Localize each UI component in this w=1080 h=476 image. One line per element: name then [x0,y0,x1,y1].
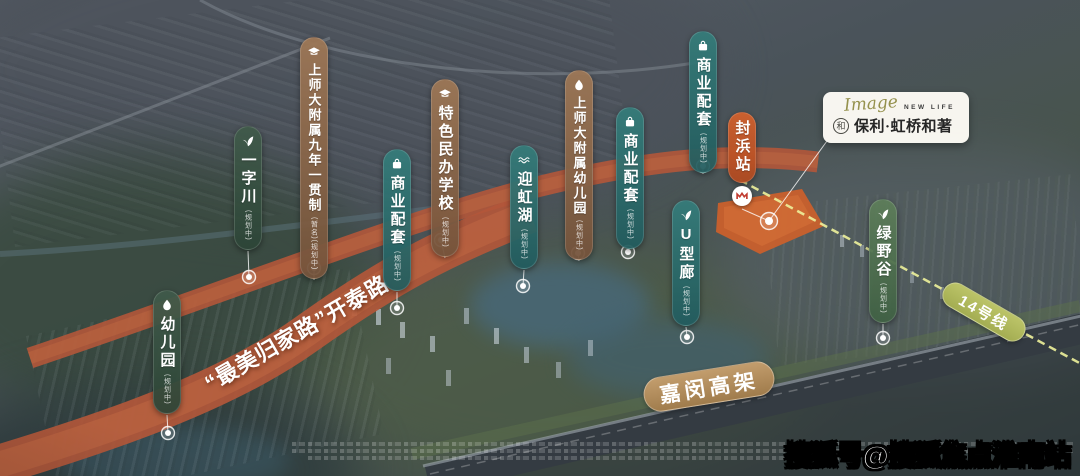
banner-note: (规划中) [245,210,252,241]
shopping-bag-icon [623,115,637,129]
banner-note: (规划中) [683,286,690,317]
banner-note: (规划中) [521,229,528,260]
banner-label: 商业配套 [390,175,405,247]
leaf-icon [241,134,255,148]
map-banner-shangshida-nine-year-school: 上师大附属九年一贯制(暂名)(规划中) [300,37,328,279]
drop-icon [572,78,586,92]
banner-note: (规划中) [576,220,583,251]
banner-note: (规划中) [880,283,887,314]
banner-label: 一字川 [241,152,256,206]
logo-subtitle: NEW LIFE [904,104,955,111]
graduation-cap-icon [307,45,321,59]
shopping-bag-icon [390,157,404,171]
banner-note: (规划中) [442,217,449,248]
map-banner-shangshida-kindergarten: 上师大附属幼儿园(规划中) [565,70,593,260]
banner-label: U型廊 [679,226,694,282]
drop-icon [160,298,174,312]
banner-note: (暂名)(规划中) [311,217,318,270]
project-name: 保利·虹桥和著 [854,115,953,136]
map-banner-commercial-mid: 商业配套(规划中) [616,107,644,249]
aerial-masterplan-map: “最美归家路”开泰路 嘉闵高架 14号线 Image NEW LIFE 和 保利… [0,0,1080,476]
leaf-icon [876,207,890,221]
project-logo-card: Image NEW LIFE 和 保利·虹桥和著 [823,92,969,143]
map-banner-fengbang-station: 封浜站 [728,112,756,183]
banner-note: (规划中) [394,251,401,282]
banner-label: 迎虹湖 [517,171,532,225]
banner-note: (规划中) [627,209,634,240]
logo-seal-icon: 和 [833,118,849,134]
banner-label: 商业配套 [696,57,711,129]
sohu-watermark: 搜狐号@搜狐焦点淮南站 [785,434,1070,473]
shopping-bag-icon [696,39,710,53]
map-banner-yizichuan-greenway: 一字川(规划中) [234,126,262,250]
banner-label: 上师大附属九年一贯制 [308,63,321,213]
banner-note: (规划中) [700,133,707,164]
banner-note: (规划中) [164,374,171,405]
map-banner-u-gallery: U型廊(规划中) [672,200,700,326]
banner-label: 封浜站 [735,120,750,174]
banner-label: 特色民办学校 [438,105,453,213]
map-banner-private-school: 特色民办学校(规划中) [431,79,459,257]
wave-icon [517,153,531,167]
graduation-cap-icon [438,87,452,101]
banner-label: 绿野谷 [876,225,891,279]
map-banner-lvyegu-valley: 绿野谷(规划中) [869,199,897,323]
logo-script-text: Image [843,94,898,115]
map-banner-kindergarten-west: 幼儿园(规划中) [153,290,181,414]
leaf-icon [679,208,693,222]
map-banner-commercial-north: 商业配套(规划中) [689,31,717,173]
banner-label: 上师大附属幼儿园 [573,96,586,216]
banner-label: 商业配套 [623,133,638,205]
shanghai-metro-logo-icon [732,186,752,206]
banner-label: 幼儿园 [160,316,175,370]
map-banner-commercial-west: 商业配套(规划中) [383,149,411,291]
map-banner-yinghong-lake: 迎虹湖(规划中) [510,145,538,269]
